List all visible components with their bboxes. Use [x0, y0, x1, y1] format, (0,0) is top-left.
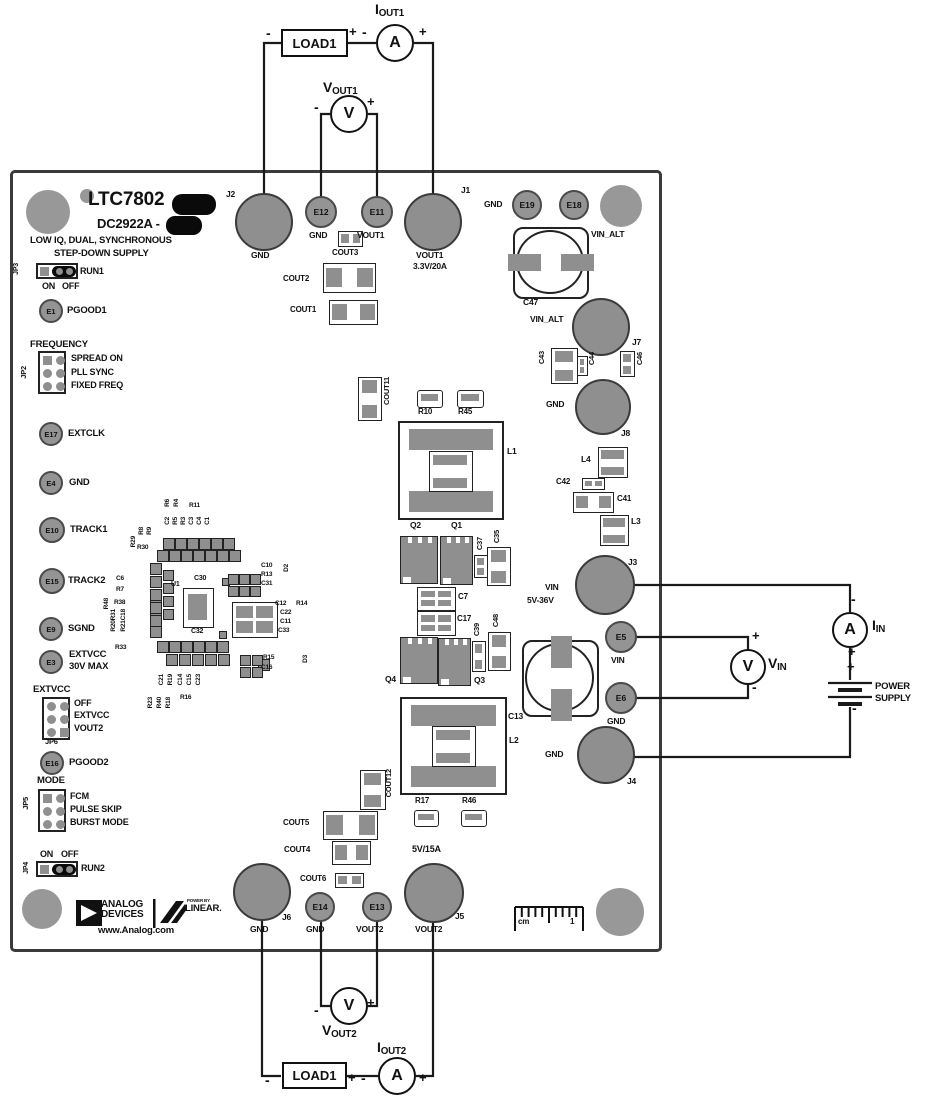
- jp2-opt3: FIXED FREQ: [71, 381, 123, 390]
- q1-ref: Q1: [451, 521, 462, 530]
- cluster-pad: [150, 563, 162, 575]
- res-r45: [457, 390, 484, 408]
- cap-cout1-pad: [332, 304, 347, 320]
- mosfet-q1: [440, 536, 473, 585]
- board-number: DC2922A -: [97, 217, 160, 230]
- cluster-pad: [157, 550, 169, 562]
- jumper-jp2: [38, 351, 66, 394]
- cluster-pad: [205, 550, 217, 562]
- ammeter-iin: A: [832, 612, 868, 648]
- testpoint-e13: E13: [362, 892, 392, 922]
- e14-net: GND: [306, 925, 324, 934]
- jumper-jp2-pin: [56, 382, 65, 391]
- ps-label-2: SUPPLY: [875, 694, 911, 704]
- pad-sq: [150, 626, 162, 638]
- c47-ref: C47: [523, 298, 538, 307]
- r13-ref: R13: [261, 572, 272, 579]
- cluster-pad: [187, 538, 199, 550]
- inductor-l1-ct: [433, 455, 467, 465]
- cluster-pad: [239, 574, 250, 585]
- c41-ref: C41: [617, 495, 631, 503]
- testpoint-e6: E6: [605, 682, 637, 714]
- jumper-jp2-pin: [56, 356, 65, 365]
- load1-top: LOAD1: [281, 29, 348, 57]
- c16-ref: C16: [261, 665, 272, 672]
- j3-rating: 5V-36V: [527, 596, 554, 605]
- cap-c43-pad: [555, 351, 573, 362]
- part-number: LTC7802: [88, 190, 164, 209]
- c32-ref: C32: [191, 628, 203, 635]
- cap-c41-pad: [576, 496, 588, 509]
- c12-ref: C12: [275, 601, 286, 608]
- cap-cout6-pad: [338, 876, 347, 884]
- vin-label: VIN: [768, 656, 787, 673]
- res-r10-body: [421, 394, 438, 401]
- cout1-ref: COUT1: [290, 306, 316, 314]
- c43-ref: C43: [538, 351, 546, 364]
- cout6-ref: COUT6: [300, 875, 326, 883]
- jp3-on: ON: [42, 282, 55, 291]
- inductor-l1-core: [429, 451, 473, 492]
- q2-ref: Q2: [410, 521, 421, 530]
- inductor-l3-t: [603, 518, 625, 527]
- jumper-jp5-pin: [56, 794, 65, 803]
- r46b-ref: R46: [462, 797, 476, 805]
- cluster-pad: [228, 574, 239, 585]
- board-desc-1: LOW IQ, DUAL, SYNCHRONOUS: [30, 236, 172, 246]
- extclk-label: EXTCLK: [68, 429, 105, 439]
- cap-c47-p2: [561, 254, 594, 271]
- cluster-pad: [193, 641, 205, 653]
- cap-c39: [472, 641, 486, 672]
- jumper-jp5-pin: [43, 794, 52, 803]
- jumper-jp6-pin: [47, 728, 56, 737]
- cap-c46: [620, 351, 635, 377]
- iin-label: IIN: [872, 618, 885, 635]
- board-desc-2: STEP-DOWN SUPPLY: [54, 249, 149, 259]
- testpoint-e14: E14: [305, 892, 335, 922]
- sign-iin-minus: -: [851, 592, 855, 606]
- c39-ref: C39: [473, 623, 481, 636]
- cap-cout4-pad: [335, 845, 347, 860]
- cluster-pad: [250, 574, 261, 585]
- testpoint-e15: E15: [39, 568, 65, 594]
- turret-j7: [572, 298, 630, 356]
- e5-net: VIN: [611, 656, 625, 665]
- cluster-pad: [163, 596, 174, 607]
- sgnd-label: SGND: [68, 624, 95, 634]
- cap-c42-pad: [585, 481, 592, 486]
- jp3-ref: JP3: [13, 263, 20, 275]
- cap-c13-p2: [551, 689, 572, 721]
- res-r17: [414, 810, 439, 827]
- jumper-jp4-pin: [40, 865, 49, 874]
- mount-hole-tr: [600, 185, 642, 227]
- cap-cout11-pad: [362, 405, 377, 418]
- d2-ref: D2: [284, 564, 291, 572]
- voltmeter-vout1: V: [330, 95, 368, 133]
- cap-cout4-pad: [356, 845, 368, 860]
- ruler-ticks: [515, 907, 583, 931]
- r18-ref: R18: [166, 697, 173, 708]
- c10-ref: C10: [261, 563, 272, 570]
- r7-ref: R7: [116, 587, 124, 594]
- component-layer: E1E17E4E10E15E9E3E16E12E11E19E18E5E6E14E…: [0, 0, 927, 1100]
- mosfet-q3-notch: [454, 639, 458, 645]
- jumper-jp3-shunt: [52, 266, 76, 277]
- cap-cout2-pad: [326, 268, 342, 288]
- e13-net: VOUT2: [356, 925, 383, 934]
- c21-ref: C21: [159, 674, 166, 685]
- cluster-pad: [192, 654, 204, 666]
- jp4-ref: JP4: [23, 862, 30, 874]
- cap-c22-bank-pad: [256, 606, 273, 618]
- jumper-jp6-pin: [47, 715, 56, 724]
- mosfet-q3-notch: [441, 679, 449, 685]
- jp6-opt2: EXTVCC: [74, 711, 109, 720]
- q4-ref: Q4: [385, 675, 396, 684]
- cap-cout3-pad: [341, 234, 349, 243]
- cap-cout12-pad: [364, 773, 381, 785]
- cap-c35-pad: [491, 571, 506, 583]
- e19-net: GND: [484, 200, 502, 209]
- j1-rating: 3.3V/20A: [413, 262, 447, 271]
- ammeter-iout2: A: [378, 1057, 416, 1095]
- j5-rating: 5V/15A: [412, 845, 441, 854]
- testpoint-e1: E1: [39, 299, 63, 323]
- load1-bottom: LOAD1: [282, 1062, 347, 1089]
- testpoint-e19: E19: [512, 190, 542, 220]
- jumper-jp3-c2: [66, 268, 73, 275]
- c7-ref: C7: [458, 593, 468, 601]
- testpoint-e9: E9: [39, 617, 63, 641]
- e11-net: VOUT1: [357, 231, 384, 240]
- mosfet-q1-notch: [465, 537, 469, 543]
- cluster-pad: [150, 615, 162, 627]
- turret-j8: [575, 379, 631, 435]
- cluster-pad: [229, 550, 241, 562]
- track2-label: TRACK2: [68, 576, 105, 586]
- e12-net: GND: [309, 231, 327, 240]
- vout1-label: VOUT1: [323, 80, 357, 97]
- inductor-l2-core: [432, 726, 476, 767]
- j2-ref: J2: [226, 190, 235, 199]
- e6-net: GND: [607, 717, 625, 726]
- mosfet-q4-notch: [408, 638, 412, 644]
- cluster-pad: [239, 586, 250, 597]
- cluster-pad: [181, 641, 193, 653]
- cluster-pad: [240, 667, 251, 678]
- r40-ref: R40: [157, 697, 164, 708]
- cap-c41: [573, 492, 614, 513]
- cap-c41-pad: [599, 496, 611, 509]
- track1-label: TRACK1: [70, 525, 107, 535]
- r15-ref: R15: [263, 655, 274, 662]
- cap-c22-bank-pad: [256, 621, 273, 633]
- mosfet-q2-notch: [408, 537, 412, 543]
- c37-ref: C37: [476, 537, 484, 550]
- sign-vout2-minus: -: [314, 1003, 318, 1017]
- l1-ref: L1: [507, 447, 517, 456]
- inductor-l3: [600, 515, 629, 546]
- r16-ref: R16: [180, 695, 191, 702]
- cap-c7-pad: [421, 591, 435, 597]
- cluster-pad: [169, 550, 181, 562]
- sign-load1b-plus: +: [348, 1071, 355, 1084]
- cluster-pad: [199, 538, 211, 550]
- label-blackout-1: [172, 194, 216, 215]
- c31-ref: C31: [261, 581, 272, 588]
- testpoint-e4: E4: [39, 471, 63, 495]
- cap-cout12-pad: [364, 795, 381, 807]
- cluster-pad: [163, 570, 174, 581]
- cluster-pad: [163, 538, 175, 550]
- inductor-l4-b: [601, 467, 624, 475]
- mosfet-q3: [438, 638, 471, 686]
- voltmeter-vin: V: [730, 649, 766, 685]
- res-r46: [461, 810, 487, 827]
- cap-c37-pad: [477, 568, 484, 575]
- jp6-ref: JP6: [45, 738, 58, 746]
- c3-ref: C3: [189, 517, 196, 525]
- u1-ref: U1: [171, 581, 180, 588]
- inductor-l4: [598, 447, 628, 478]
- mosfet-q1-notch: [456, 537, 460, 543]
- turret-j3: [575, 555, 635, 615]
- cap-c22-bank-pad: [236, 621, 253, 633]
- mosfet-q2-notch: [403, 577, 411, 583]
- mosfet-q3-notch: [445, 639, 449, 645]
- cap-c48-pad: [492, 635, 506, 647]
- q3-ref: Q3: [474, 676, 485, 685]
- jp2-ref: JP2: [20, 366, 28, 379]
- testpoint-e10: E10: [39, 517, 65, 543]
- cap-c42-pad: [595, 481, 602, 486]
- cap-cout11-pad: [362, 380, 377, 393]
- sign-iin-plus: +: [848, 645, 855, 658]
- cluster-pad: [193, 550, 205, 562]
- c48-ref: C48: [492, 614, 500, 627]
- jumper-jp2-pin: [43, 382, 52, 391]
- cap-c39-pad: [475, 660, 482, 669]
- cap-c39-pad: [475, 644, 482, 653]
- jumper-jp2-pin: [43, 369, 52, 378]
- jumper-jp6-pin: [60, 702, 69, 711]
- j1-net: VOUT1: [416, 251, 443, 260]
- cap-c7: [417, 587, 456, 611]
- cap-c22-bank-pad: [236, 606, 253, 618]
- j7-ref: J7: [632, 338, 641, 347]
- run2-label: RUN2: [81, 864, 105, 873]
- c30-ref: C30: [194, 575, 206, 582]
- jumper-jp3-pin: [40, 267, 49, 276]
- jumper-jp2-pin: [56, 369, 65, 378]
- jumper-jp3-c1: [56, 268, 63, 275]
- jumper-jp6: [42, 697, 70, 740]
- mosfet-q2-notch: [428, 537, 432, 543]
- label-blackout-2: [166, 216, 202, 235]
- cap-c44-pad: [580, 367, 584, 373]
- r10-ref: R10: [418, 408, 432, 416]
- vout2-label: VOUT2: [322, 1023, 356, 1040]
- sign-batt-plus: +: [847, 660, 854, 673]
- frequency-label: FREQUENCY: [30, 340, 88, 350]
- res-r17-body: [418, 814, 434, 820]
- cap-c22-bank: [232, 602, 278, 638]
- cluster-pad: [179, 654, 191, 666]
- cluster-pad: [205, 654, 217, 666]
- cluster-pad: [181, 550, 193, 562]
- sign-vout1-minus: -: [314, 100, 318, 114]
- jumper-jp6-pin: [60, 728, 69, 737]
- jumper-jp2-pin: [43, 356, 52, 365]
- cap-cout1: [329, 300, 378, 325]
- d3-ref: D3: [303, 655, 310, 663]
- j6-ref: J6: [282, 913, 291, 922]
- cm-ruler: [513, 901, 589, 937]
- jp2-opt2: PLL SYNC: [71, 368, 114, 377]
- l4-ref: L4: [581, 455, 591, 464]
- jp4-on: ON: [40, 850, 53, 859]
- jp5-opt2: PULSE SKIP: [70, 805, 122, 814]
- inductor-l2: [400, 697, 507, 795]
- cluster-pad: [217, 641, 229, 653]
- cap-c7-pad: [438, 591, 452, 597]
- cap-cout2: [323, 263, 376, 293]
- cap-c43-pad: [555, 370, 573, 381]
- r9-ref: R9: [147, 527, 154, 535]
- cluster-pad: [211, 538, 223, 550]
- cluster-pad: [217, 550, 229, 562]
- j4-net: GND: [545, 750, 563, 759]
- jp5-opt1: FCM: [70, 792, 89, 801]
- j5-ref: J5: [455, 912, 464, 921]
- mosfet-q1-notch: [447, 537, 451, 543]
- cluster-pad: [223, 538, 235, 550]
- cap-cout2-pad: [357, 268, 373, 288]
- cluster-pad: [150, 602, 162, 614]
- cluster-pad: [228, 586, 239, 597]
- inductor-l4-t: [601, 450, 624, 459]
- cap-c13: [522, 640, 599, 717]
- pad-sq: [219, 631, 227, 639]
- cap-cout6: [335, 873, 364, 888]
- cap-c47-p1: [508, 254, 541, 271]
- c42-ref: C42: [556, 478, 570, 486]
- jp6-opt1: OFF: [74, 699, 91, 708]
- j3-ref: J3: [628, 558, 637, 567]
- l3-ref: L3: [631, 517, 641, 526]
- testpoint-e11: E11: [361, 196, 393, 228]
- r8-ref: R8: [139, 527, 146, 535]
- r6-ref: R6: [165, 499, 172, 507]
- cap-c42: [582, 478, 605, 490]
- cap-c44-pad: [580, 359, 584, 365]
- r14-ref: R14: [296, 601, 307, 608]
- sign-vin-plus: +: [752, 629, 759, 642]
- l2-ref: L2: [509, 736, 519, 745]
- cap-c43: [551, 348, 578, 384]
- ammeter-iout1: A: [376, 24, 414, 62]
- e3-30v-label: 30V MAX: [69, 662, 108, 672]
- cap-c13-p1: [551, 636, 572, 668]
- c35-ref: C35: [493, 530, 501, 543]
- sign-iout1-plus: +: [419, 25, 426, 38]
- e3-extvcc-label: EXTVCC: [69, 650, 106, 660]
- cap-cout5-pad: [359, 815, 376, 834]
- mosfet-q4-notch: [403, 677, 411, 683]
- jp5-ref: JP5: [22, 797, 30, 810]
- testpoint-e17: E17: [39, 422, 63, 446]
- jumper-jp5-pin: [56, 807, 65, 816]
- cap-c17-pad: [438, 615, 452, 622]
- cap-c47: [513, 227, 589, 299]
- c1-ref: C1: [205, 517, 212, 525]
- c33-ref: C33: [278, 628, 289, 635]
- cap-cout4: [332, 841, 371, 865]
- cap-cout11: [358, 377, 382, 421]
- r33-ref: R33: [115, 645, 126, 652]
- e18-net: VIN_ALT: [591, 230, 624, 239]
- mode-label: MODE: [37, 776, 65, 786]
- cap-c48: [488, 632, 511, 671]
- logo-divider: [153, 899, 156, 928]
- c11-ref: C11: [280, 619, 291, 626]
- cap-c7-pad: [421, 600, 435, 606]
- cap-c35-pad: [491, 550, 506, 562]
- mount-hole-bl: [22, 889, 62, 929]
- inductor-l2-t: [411, 705, 496, 726]
- cap-c17-pad: [421, 625, 435, 632]
- iout2-label: IOUT2: [377, 1040, 406, 1057]
- cluster-pad: [150, 576, 162, 588]
- pgood1-label: PGOOD1: [67, 306, 106, 316]
- jumper-jp6-pin: [60, 715, 69, 724]
- j6-net: GND: [250, 925, 268, 934]
- j3-net: VIN: [545, 583, 559, 592]
- jumper-jp5-pin: [56, 820, 65, 829]
- r38-ref: R38: [114, 600, 125, 607]
- cluster-pad: [240, 655, 251, 666]
- c17-ref: C17: [457, 615, 471, 623]
- cap-cout6-pad: [352, 876, 361, 884]
- cluster-pad: [250, 586, 261, 597]
- sign-load1t-minus: -: [266, 26, 270, 40]
- mosfet-q2-notch: [418, 537, 422, 543]
- demo-board-connection-diagram: E1E17E4E10E15E9E3E16E12E11E19E18E5E6E14E…: [0, 0, 927, 1100]
- cap-c37: [474, 555, 488, 578]
- sign-load1b-minus: -: [265, 1073, 269, 1087]
- cout5-ref: COUT5: [283, 819, 309, 827]
- c15-ref: C15: [187, 674, 194, 685]
- cout12-ref: COUT12: [385, 769, 393, 797]
- r45-ref: R45: [458, 408, 472, 416]
- c22-ref: C22: [280, 610, 291, 617]
- sign-iout2-minus: -: [361, 1071, 365, 1085]
- mosfet-q4-notch: [418, 638, 422, 644]
- voltmeter-vout2: V: [330, 987, 368, 1025]
- cluster-pad: [166, 654, 178, 666]
- jp6-opt3: VOUT2: [74, 724, 103, 733]
- res-r46-body: [465, 814, 482, 820]
- cout2-ref: COUT2: [283, 275, 309, 283]
- cluster-pad: [163, 609, 174, 620]
- r4-ref: R4: [174, 499, 181, 507]
- j4-ref: J4: [627, 777, 636, 786]
- cap-cout1-pad: [360, 304, 375, 320]
- testpoint-e12: E12: [305, 196, 337, 228]
- ic-u1: [183, 588, 214, 628]
